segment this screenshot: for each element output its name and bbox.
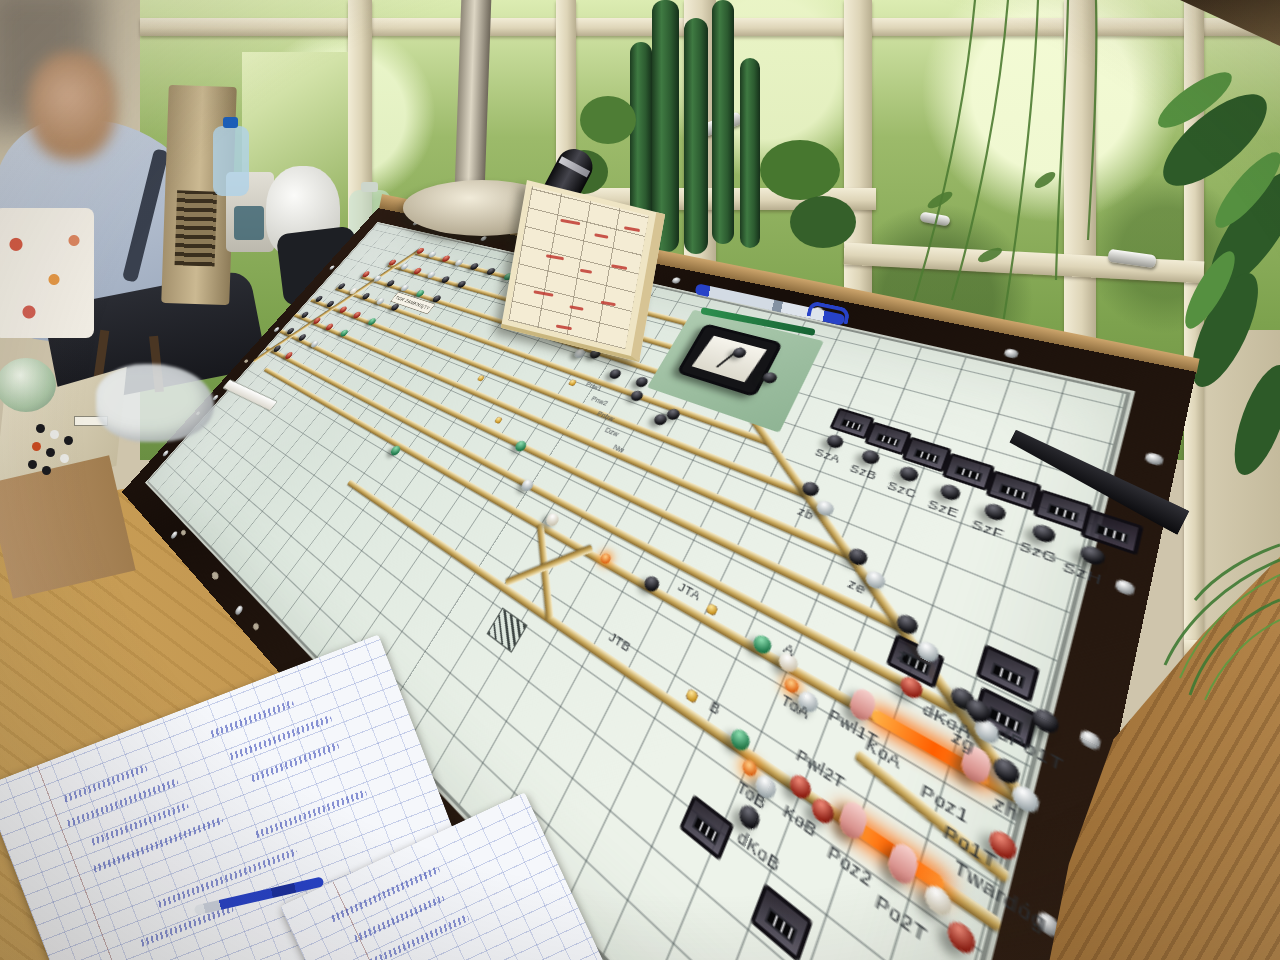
device-button[interactable] — [60, 454, 69, 463]
block-apparatus-front — [0, 455, 136, 598]
device-button[interactable] — [36, 424, 45, 433]
water-bottle — [213, 126, 249, 196]
window-mullion — [1184, 0, 1204, 660]
window-mullion — [844, 0, 872, 330]
frame-bolt — [234, 604, 244, 616]
red-entry-mark — [560, 219, 580, 225]
device-button[interactable] — [50, 430, 59, 439]
frame-wear — [244, 359, 249, 363]
operator-head-blurred — [28, 52, 116, 160]
timetable-grid — [508, 186, 648, 349]
signal-box-photo: 24 25 26 27 TOR ZAMKNIĘTY Pnw1 — [0, 0, 1280, 960]
side-table-floral-cloth — [0, 208, 94, 338]
frame-bolt — [170, 530, 178, 539]
handwriting — [138, 905, 234, 947]
device-button[interactable] — [32, 442, 41, 451]
device-button[interactable] — [64, 436, 73, 445]
frame-bolt — [671, 277, 682, 284]
cactus-stem — [740, 58, 760, 248]
plant-foliage — [790, 196, 856, 248]
window-mullion — [1064, 0, 1096, 380]
device-button[interactable] — [28, 460, 37, 469]
red-entry-mark — [580, 269, 592, 274]
red-entry-mark — [624, 226, 640, 232]
cactus-stem — [712, 0, 734, 244]
frame-bolt — [1114, 578, 1135, 597]
frame-bolt — [1144, 452, 1164, 467]
red-entry-mark — [569, 305, 583, 310]
red-entry-mark — [556, 325, 572, 331]
red-entry-mark — [601, 301, 616, 307]
plant-foliage — [580, 96, 636, 144]
plant-foliage — [760, 140, 840, 200]
device-button[interactable] — [42, 466, 51, 475]
frame-wear — [180, 529, 187, 536]
red-entry-mark — [534, 290, 554, 296]
handwriting — [253, 789, 368, 839]
handwriting — [329, 866, 441, 923]
frame-wear — [211, 570, 220, 581]
red-entry-mark — [546, 254, 564, 260]
red-entry-mark — [594, 233, 608, 238]
device-button[interactable] — [46, 448, 55, 457]
handwriting — [65, 778, 180, 828]
cactus-stem — [684, 18, 708, 254]
red-entry-mark — [611, 264, 627, 270]
frame-bolt — [1079, 728, 1102, 753]
frame-wear — [252, 622, 260, 631]
meter-face — [692, 336, 767, 383]
frame-bolt — [480, 236, 488, 241]
frame-bolt — [1003, 348, 1019, 359]
handwriting — [91, 817, 224, 874]
